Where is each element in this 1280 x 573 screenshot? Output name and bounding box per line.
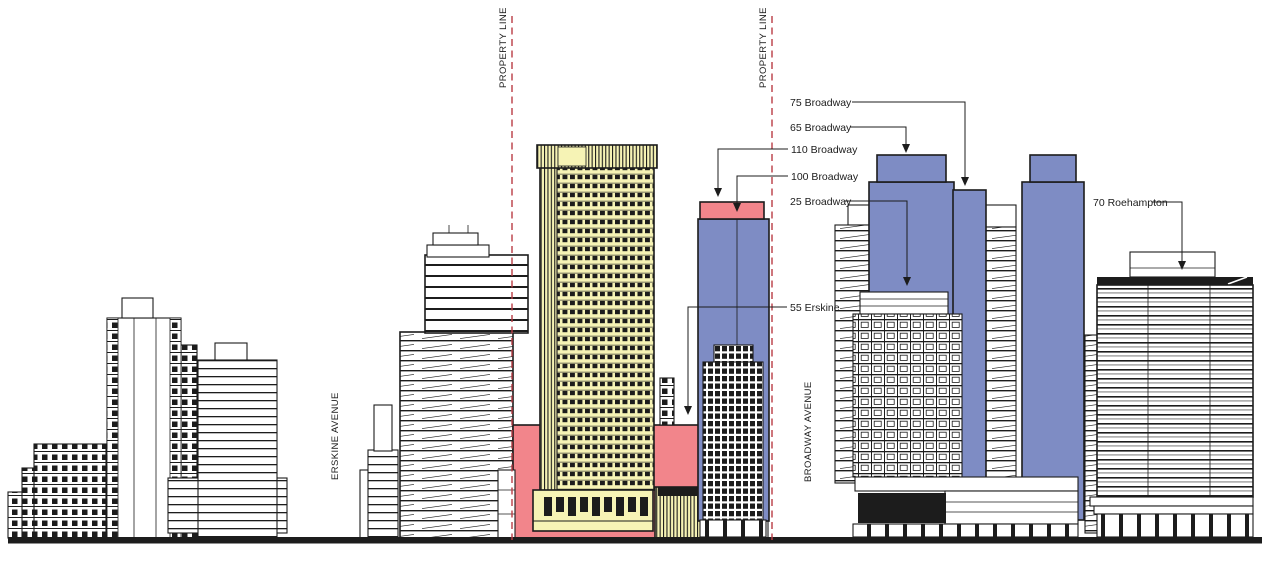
label-75-broadway: 75 Broadway bbox=[790, 97, 852, 109]
tower-c-mech-1 bbox=[427, 245, 489, 257]
label-100-broadway: 100 Broadway bbox=[791, 171, 859, 183]
label-25-broadway: 25 Broadway bbox=[790, 196, 852, 208]
property-line-right-label: PROPERTY LINE bbox=[758, 7, 769, 88]
arrow-65-broadway bbox=[902, 144, 910, 153]
arrow-75-broadway bbox=[961, 177, 969, 186]
street-label-broadway: BROADWAY AVENUE bbox=[803, 381, 814, 482]
street-label-erskine: ERSKINE AVENUE bbox=[330, 392, 341, 480]
yellow-tower-parapet bbox=[537, 145, 657, 168]
blue-tower-far-right bbox=[1022, 155, 1084, 520]
label-65-broadway: 65 Broadway bbox=[790, 122, 852, 134]
building-25-broadway-existing bbox=[700, 345, 766, 537]
property-line-left-label: PROPERTY LINE bbox=[498, 7, 509, 88]
blue-cap-far bbox=[1030, 155, 1076, 182]
roehampton-body bbox=[1097, 285, 1253, 497]
tower-c-lower bbox=[400, 332, 513, 538]
label-110-broadway: 110 Broadway bbox=[791, 144, 858, 156]
tower-a-penthouse bbox=[122, 298, 153, 318]
elevation-drawing: PROPERTY LINE PROPERTY LINE ERSKINE AVEN… bbox=[0, 0, 1280, 573]
gridded-podium-building bbox=[853, 314, 962, 477]
left-context-buildings bbox=[8, 298, 287, 538]
blue-cap-65 bbox=[877, 155, 946, 182]
tower-b-penthouse bbox=[215, 343, 247, 360]
tower-c-mech-2 bbox=[433, 233, 478, 245]
roehampton-penthouse bbox=[1130, 252, 1215, 277]
arrow-55-erskine bbox=[684, 406, 692, 415]
building-70-roehampton bbox=[1090, 252, 1253, 537]
label-70-roehampton: 70 Roehampton bbox=[1093, 197, 1168, 209]
ground-line bbox=[8, 537, 1262, 544]
black-base-block bbox=[858, 493, 946, 523]
left-lowrise-3 bbox=[34, 444, 106, 538]
tower-b bbox=[198, 360, 277, 538]
elevation-svg: PROPERTY LINE PROPERTY LINE ERSKINE AVEN… bbox=[0, 0, 1280, 573]
arrow-110-broadway bbox=[714, 188, 722, 197]
pink-mechanical-cap bbox=[700, 202, 764, 219]
podium-slab-25-broadway bbox=[860, 292, 948, 314]
label-55-erskine: 55 Erskine bbox=[790, 302, 840, 314]
